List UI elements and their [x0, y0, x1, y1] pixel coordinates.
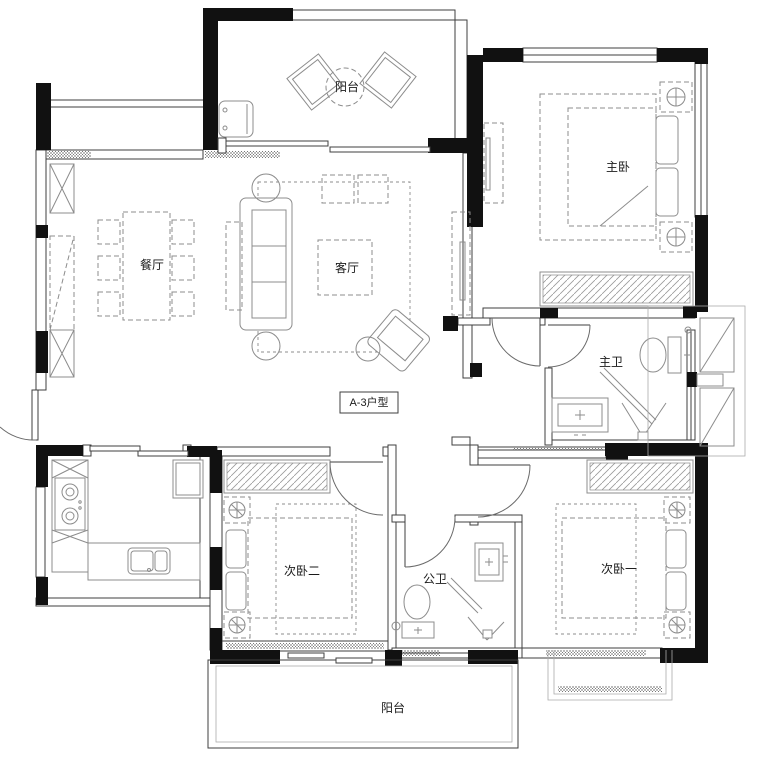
balcony-top	[218, 52, 430, 153]
pillow-1-bedroom-two	[226, 530, 246, 568]
side-table-bottom	[252, 332, 280, 360]
dining-room	[50, 164, 194, 377]
nightstand-top-bedroom-one	[664, 497, 690, 523]
master-bedroom-door	[492, 318, 540, 366]
floor-plan: 阳台 主卧 餐厅 客厅 主卫 次卧二 公卫 次卧一 阳台 A-3户型	[0, 0, 758, 758]
toilet-public	[392, 585, 434, 638]
label-living: 客厅	[335, 260, 359, 275]
balcony-bottom	[208, 653, 518, 748]
nightstand-top-bedroom-two	[224, 497, 250, 523]
bedroom-one	[556, 460, 693, 638]
sofa	[226, 198, 292, 330]
ac-unit-top	[700, 318, 734, 372]
ottoman-right	[358, 175, 388, 203]
bedroom-two-door	[330, 462, 383, 515]
master-wardrobe	[540, 272, 693, 306]
label-master-bath: 主卫	[599, 355, 623, 369]
ac-duct	[697, 374, 723, 386]
floor-plan-canvas: 阳台 主卧 餐厅 客厅 主卫 次卧二 公卫 次卧一 阳台 A-3户型	[0, 0, 758, 758]
label-balcony-bottom: 阳台	[381, 700, 405, 715]
fridge	[173, 460, 203, 498]
kitchen	[52, 446, 203, 580]
shower-master	[600, 368, 666, 440]
kitchen-sliding-door	[90, 446, 188, 456]
balcony-chair-right	[360, 52, 416, 108]
master-pillow-2	[656, 168, 678, 216]
master-bed-blanket	[540, 94, 656, 240]
label-bedroom-two: 次卧二	[284, 564, 320, 578]
ac-platform	[648, 306, 745, 456]
entry-door	[0, 390, 38, 440]
label-bedroom-one: 次卧一	[601, 562, 637, 576]
pillow-2-bedroom-one	[666, 572, 686, 610]
wardrobe-bedroom-two	[224, 460, 330, 493]
unit-type-text: A-3户型	[349, 395, 388, 409]
pillow-2-bedroom-two	[226, 572, 246, 610]
counter-x-top	[52, 460, 88, 478]
vanity-master	[552, 398, 608, 435]
label-dining: 餐厅	[140, 257, 164, 272]
master-bath-door	[548, 325, 590, 367]
stove	[55, 478, 85, 530]
public-bathroom	[392, 543, 508, 640]
ac-unit-bottom	[700, 388, 734, 446]
label-public-bath: 公卫	[423, 572, 447, 586]
tv-cabinet-master	[484, 123, 503, 203]
public-bath-door	[405, 517, 455, 567]
pillow-1-bedroom-one	[666, 530, 686, 568]
master-bathroom	[552, 327, 691, 440]
master-nightstand-bottom	[660, 222, 692, 252]
master-nightstand-top	[660, 82, 692, 112]
ottoman-left	[322, 175, 354, 203]
unit-type-label: A-3户型	[340, 392, 398, 413]
vanity-public	[475, 543, 508, 581]
nightstand-bottom-bedroom-one	[664, 612, 690, 638]
dining-cabinet-mid	[50, 236, 74, 330]
wardrobe-bedroom-one	[587, 460, 693, 493]
master-pillow-1	[656, 116, 678, 164]
balcony-sliding-door	[218, 138, 430, 153]
dining-cabinet-top	[50, 164, 74, 213]
washing-machine	[219, 101, 253, 137]
master-bedroom	[484, 82, 693, 306]
label-balcony-top: 阳台	[335, 79, 359, 94]
dining-cabinet-bottom	[50, 330, 74, 377]
kitchen-sink	[128, 548, 170, 574]
nightstand-bottom-bedroom-two	[224, 612, 250, 638]
label-master-bedroom: 主卧	[606, 160, 630, 174]
bedroom-one-door	[478, 465, 530, 517]
bed-throw-line	[600, 186, 648, 226]
counter-x-bottom	[52, 530, 88, 543]
shower-public	[447, 578, 504, 640]
